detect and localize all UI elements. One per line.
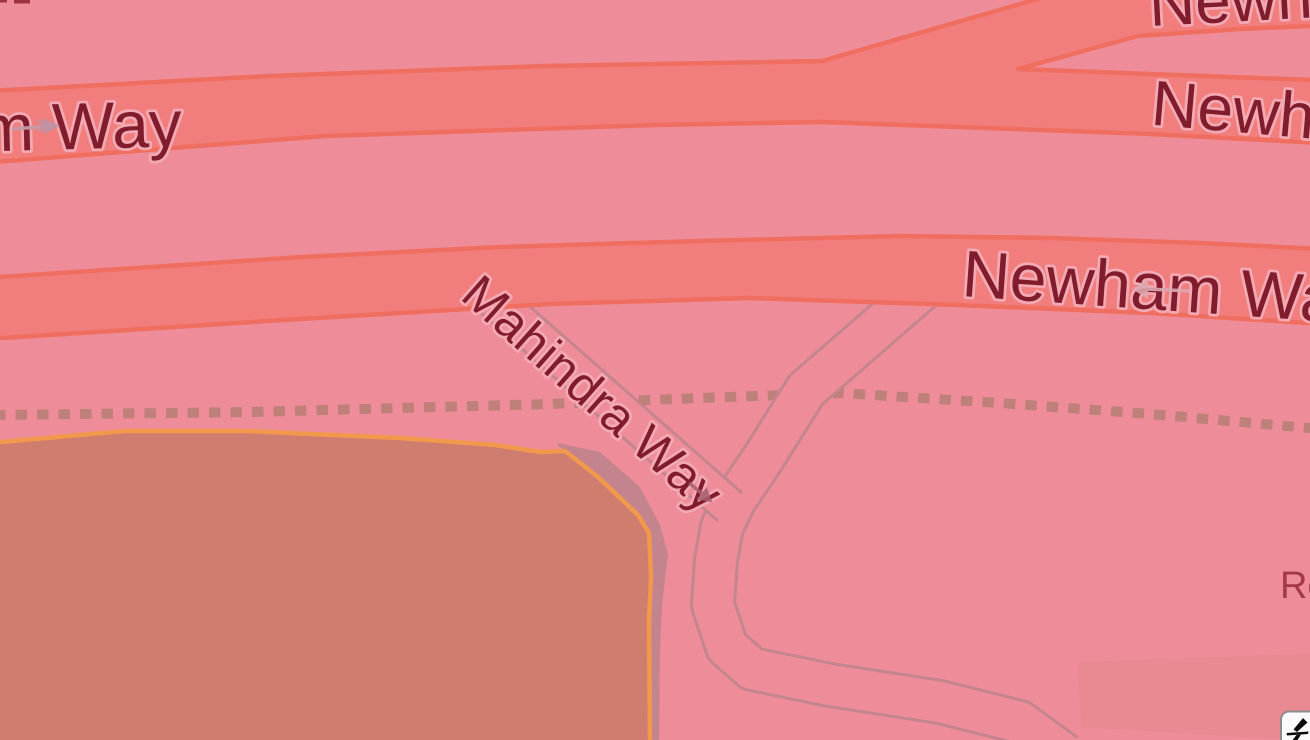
svg-text:Royal: Royal [1280, 565, 1310, 607]
